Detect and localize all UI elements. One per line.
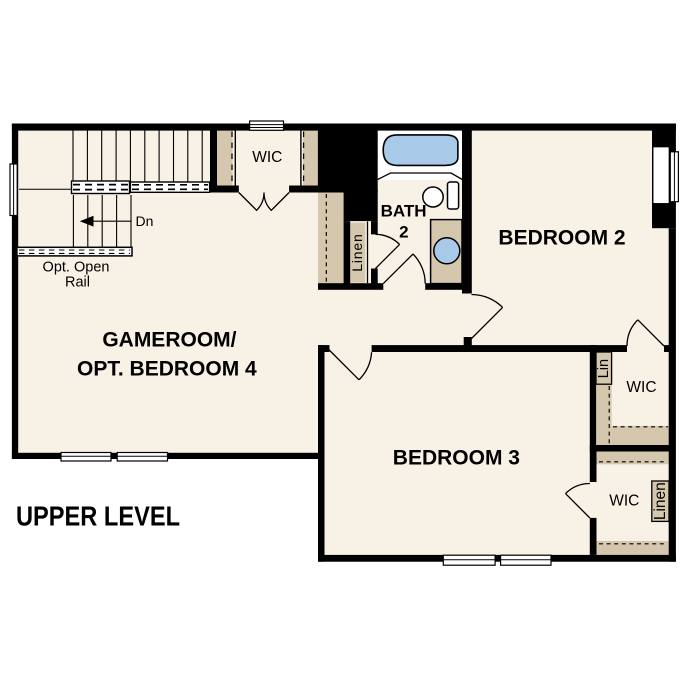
svg-text:Opt. Open: Opt. Open — [43, 259, 110, 275]
svg-text:Linen: Linen — [349, 233, 365, 271]
svg-text:Rail: Rail — [65, 274, 90, 290]
svg-text:UPPER LEVEL: UPPER LEVEL — [16, 501, 180, 532]
svg-text:GAMEROOM/: GAMEROOM/ — [102, 328, 236, 351]
svg-text:BEDROOM 3: BEDROOM 3 — [393, 446, 520, 469]
svg-text:2: 2 — [399, 223, 408, 242]
svg-text:BATH: BATH — [381, 202, 427, 221]
svg-text:WIC: WIC — [626, 379, 656, 396]
svg-text:WIC: WIC — [252, 149, 282, 166]
svg-text:Dn: Dn — [136, 213, 154, 229]
svg-text:WIC: WIC — [609, 493, 639, 510]
svg-text:Linen: Linen — [652, 482, 669, 520]
svg-text:OPT. BEDROOM 4: OPT. BEDROOM 4 — [77, 357, 257, 380]
svg-text:BEDROOM 2: BEDROOM 2 — [498, 227, 625, 250]
svg-text:Lin: Lin — [596, 359, 612, 378]
